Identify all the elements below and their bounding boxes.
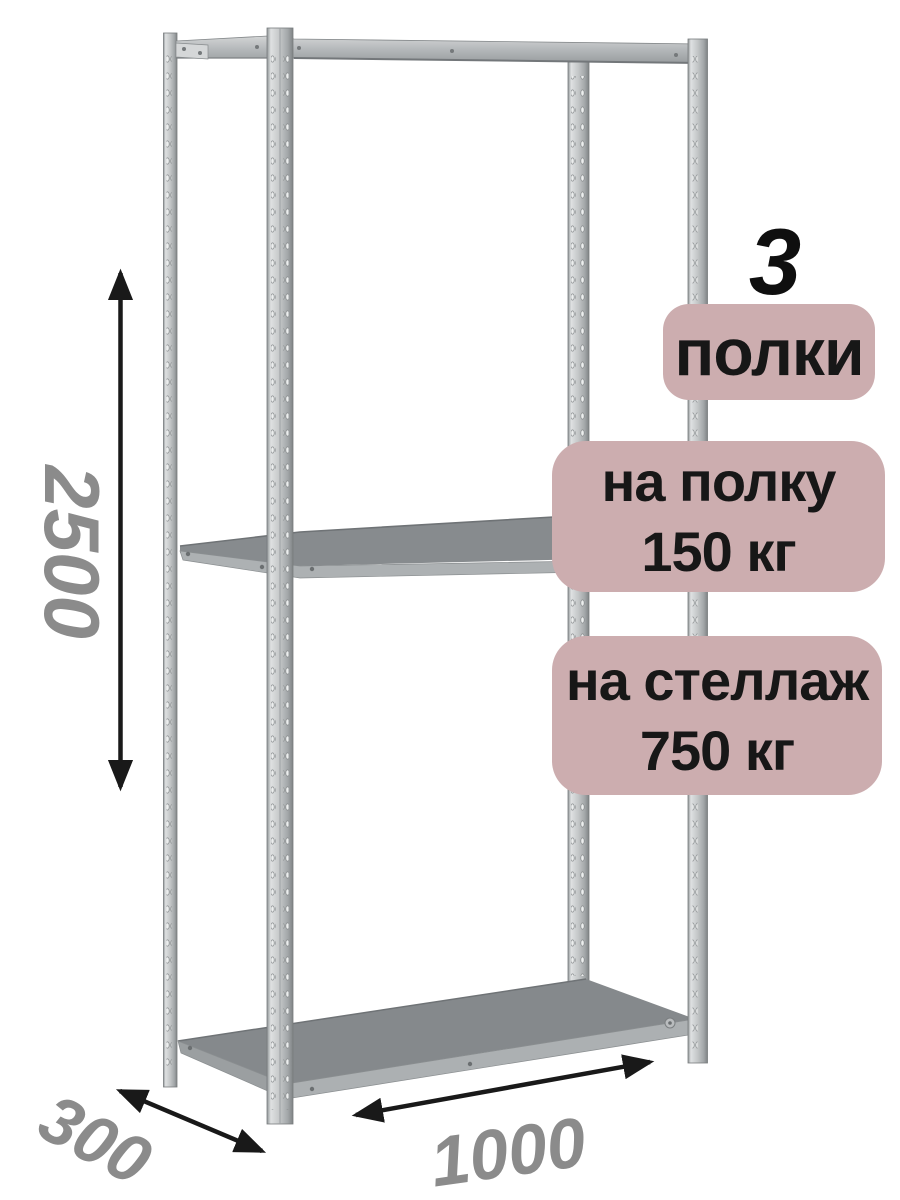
height-dimension-label: 2500	[32, 452, 112, 652]
shelves-badge: полки	[663, 304, 875, 400]
shelves-badge-label: полки	[674, 314, 863, 390]
rack-back-left-post	[164, 33, 178, 1087]
rack-front-left-post	[267, 28, 293, 1124]
per-shelf-load-badge: на полку 150 кг	[552, 441, 885, 592]
shelving-rack-illustration	[0, 0, 900, 1200]
per-shelf-load-label: на полку	[602, 447, 836, 517]
per-rack-load-badge: на стеллаж 750 кг	[552, 636, 882, 795]
rack-bottom-shelf	[178, 979, 695, 1099]
per-shelf-load-value: 150 кг	[641, 517, 795, 587]
shelf-count-number: 3	[723, 210, 827, 314]
rack-middle-shelf	[180, 515, 588, 578]
per-rack-load-label: на стеллаж	[566, 646, 868, 716]
rack-top-shelf	[176, 36, 701, 63]
product-card: 2500 300 1000 3 полки на полку 150 кг на…	[0, 0, 900, 1200]
per-rack-load-value: 750 кг	[640, 716, 794, 786]
